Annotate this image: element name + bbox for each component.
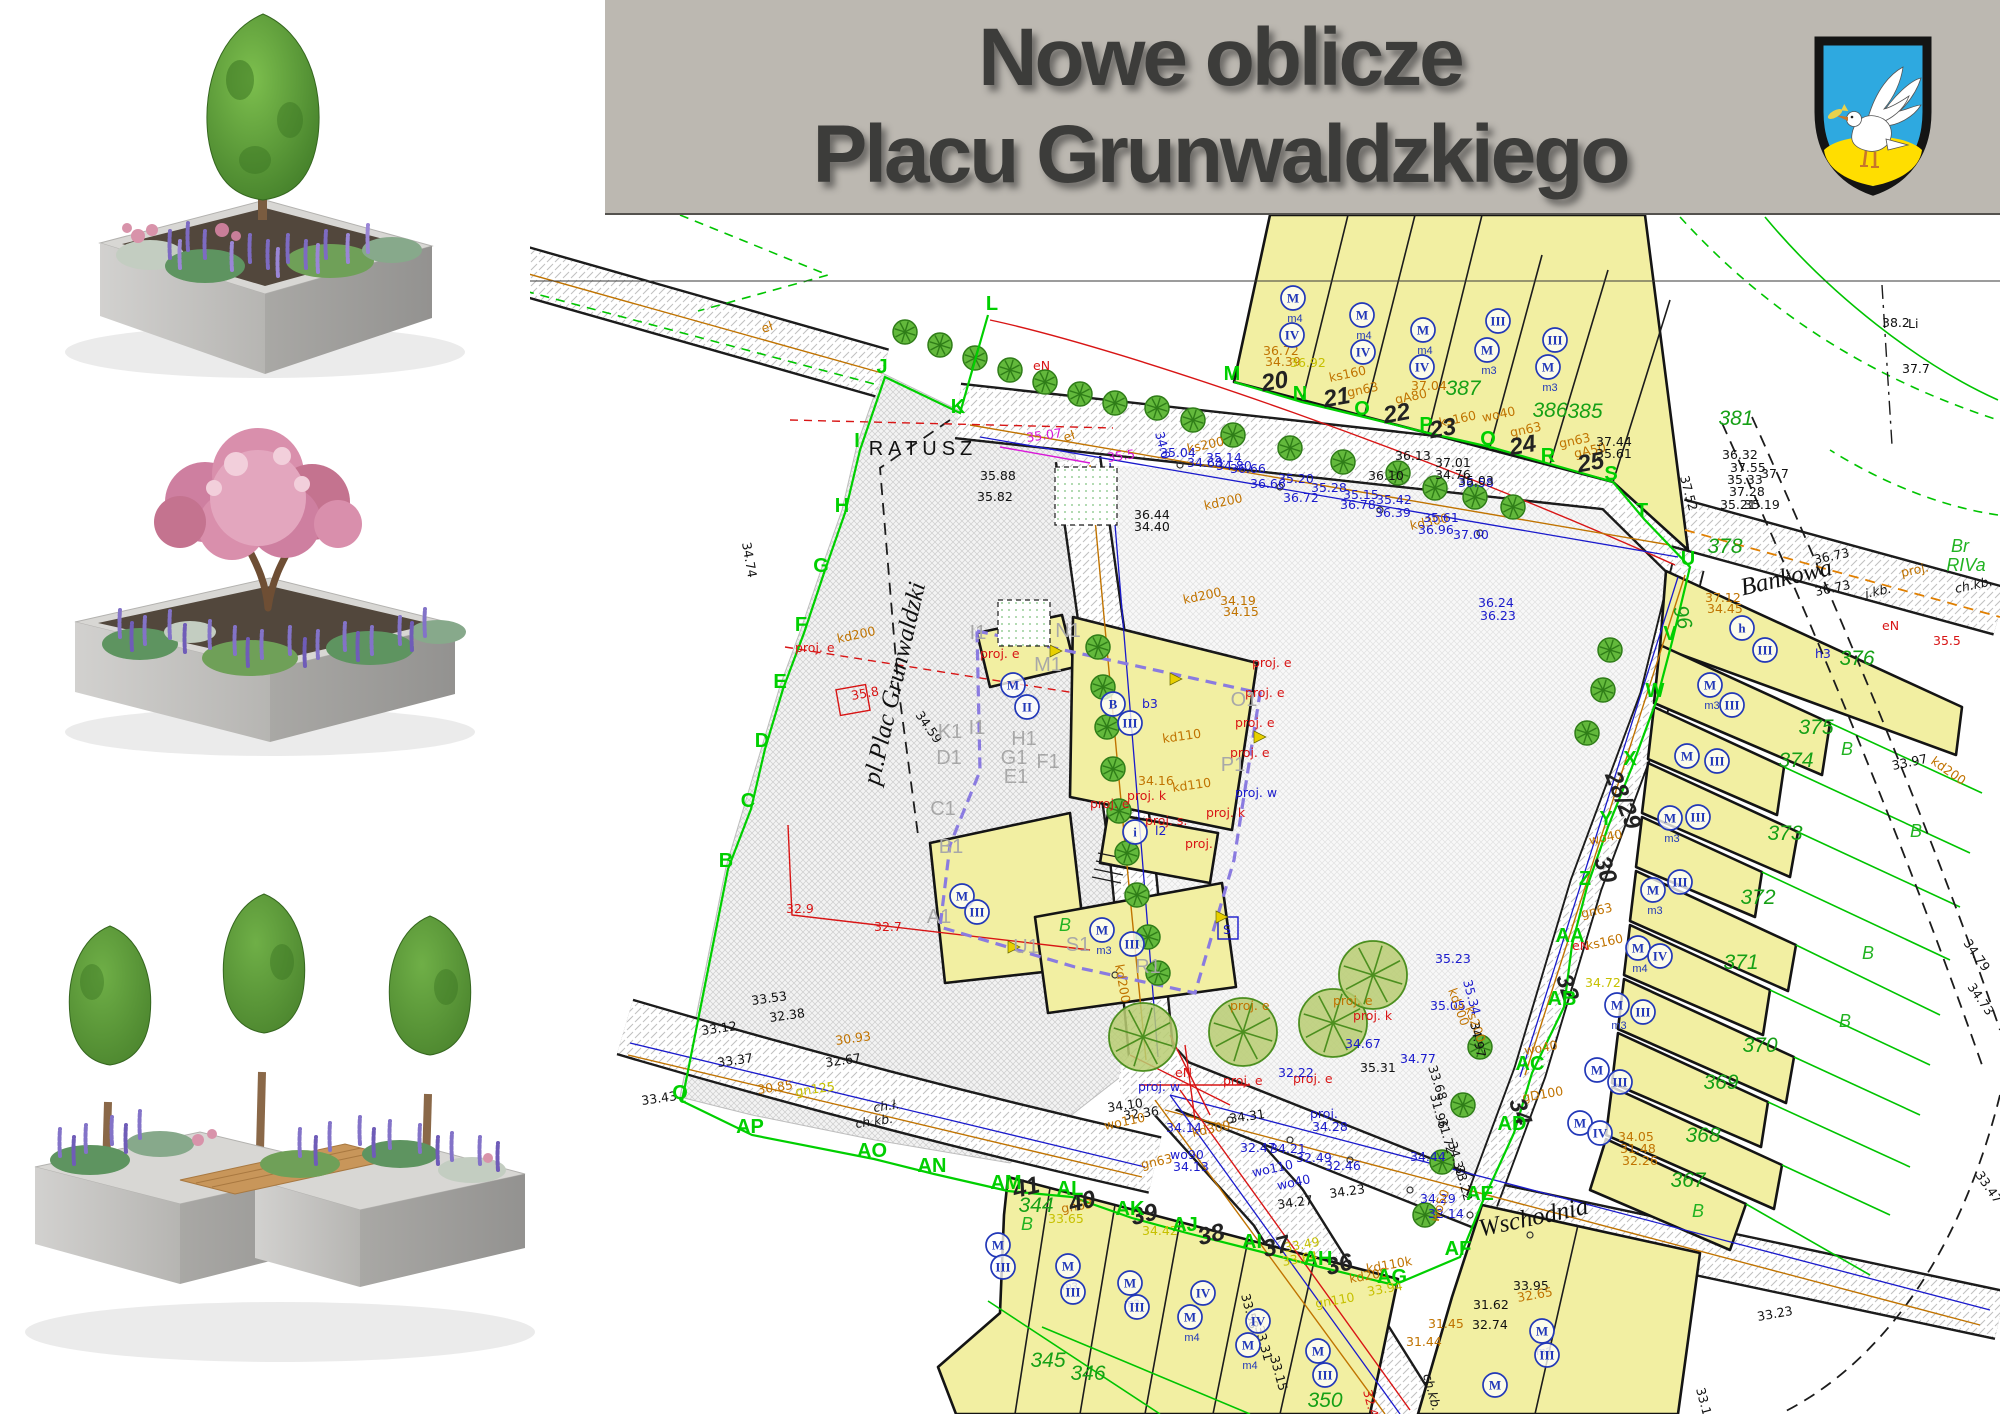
svg-text:IV: IV — [1285, 328, 1300, 343]
place-name: Br — [1951, 536, 1970, 556]
tree-symbol — [1095, 715, 1119, 739]
svg-text:III: III — [995, 1260, 1010, 1275]
map-label: 32.26 — [1622, 1153, 1658, 1168]
poster: Nowe oblicze Placu Grunwaldzkiego — [0, 0, 2000, 1414]
svg-text:m3: m3 — [1704, 700, 1719, 712]
boundary-point-letter: X — [1623, 748, 1637, 770]
parcel-number: 346 — [1070, 1362, 1105, 1385]
building-class-mark: III — [1061, 1280, 1085, 1304]
parcel-number: 368 — [1685, 1124, 1720, 1147]
map-label: 36.39 — [1375, 505, 1411, 520]
svg-text:III: III — [1709, 754, 1724, 769]
map-label: 34.67 — [1345, 1036, 1381, 1051]
landuse-label: B — [1692, 1201, 1704, 1221]
landuse-label: B — [1910, 821, 1922, 841]
map-label: Li — [1908, 316, 1918, 331]
building-class-mark: III — [1535, 1343, 1559, 1367]
boundary-point-letter: D — [755, 730, 769, 752]
shadow — [25, 1302, 535, 1362]
svg-text:M: M — [1574, 1116, 1586, 1131]
title-banner: Nowe oblicze Placu Grunwaldzkiego — [605, 0, 2000, 215]
boundary-point-letter: E — [773, 671, 786, 693]
map-label: proj. e — [1333, 993, 1373, 1008]
map-label: proj. e — [980, 646, 1020, 661]
map-label: 36.13 — [1395, 448, 1431, 463]
svg-text:m3: m3 — [1664, 833, 1679, 845]
area-letter: A1 — [927, 906, 951, 928]
map-label: 35.88 — [980, 468, 1016, 483]
boundary-point-letter: U — [1681, 548, 1695, 570]
area-letter: D1 — [936, 747, 962, 769]
tree-symbol — [1591, 678, 1615, 702]
boundary-point-letter: G — [813, 555, 829, 577]
building-class-mark: IV — [1191, 1281, 1215, 1305]
landuse-label: B — [1841, 739, 1853, 759]
area-letter: R1 — [1135, 956, 1161, 978]
boundary-point-letter: L — [986, 293, 998, 315]
map-label: proj. k — [1127, 788, 1167, 803]
map-label: 34.73 — [1965, 980, 1998, 1018]
parcel-number: 385 — [1567, 400, 1602, 423]
map-label: proj. k — [1206, 805, 1246, 820]
building-class-mark: h — [1730, 616, 1754, 640]
map-label: 34.15 — [1223, 604, 1259, 619]
map-label: 35.19 — [1744, 497, 1780, 512]
map-label: proj. — [1185, 836, 1213, 851]
parcel-number: 386 — [1532, 399, 1567, 422]
building-class-mark: III — [1668, 870, 1692, 894]
title-line-2: Placu Grunwaldzkiego — [605, 107, 1835, 204]
boundary-point-letter: Y — [1599, 808, 1613, 830]
area-letter: U1 — [1013, 936, 1039, 958]
map-label: 32.46 — [1325, 1158, 1361, 1173]
area-letter: F1 — [1036, 751, 1059, 773]
map-label: 31.62 — [1473, 1297, 1509, 1312]
building-class-mark: M — [1001, 673, 1025, 697]
parcel-number: 371 — [1723, 951, 1758, 974]
map-label: 34.16 — [1138, 773, 1174, 788]
boundary-point-letter: T — [1636, 500, 1648, 522]
svg-text:III: III — [969, 905, 984, 920]
building-class-mark: M — [986, 1233, 1010, 1257]
map-label: proj. e — [1230, 998, 1270, 1013]
svg-text:m4: m4 — [1632, 963, 1647, 975]
parcel-number: 381 — [1718, 407, 1753, 430]
map-label: 36.96 — [1418, 522, 1454, 537]
map-label: 32.9 — [786, 901, 814, 916]
lot-number: 25 — [1574, 447, 1607, 479]
boundary-point-letter: AD — [1498, 1113, 1527, 1135]
area-letter: I1 — [969, 717, 986, 739]
parcel-number: 375 — [1798, 716, 1833, 739]
svg-text:m3: m3 — [1611, 1020, 1626, 1032]
svg-text:h: h — [1738, 621, 1746, 636]
boundary-point-letter: AO — [857, 1140, 887, 1162]
svg-text:M: M — [1591, 1063, 1603, 1078]
boundary-point-letter: AN — [918, 1155, 947, 1177]
map-label: 35.20 — [1278, 471, 1314, 486]
svg-text:M: M — [1007, 678, 1019, 693]
boundary-point-letter: AB — [1548, 988, 1577, 1010]
boundary-point-letter: Q — [1480, 428, 1496, 450]
tree-symbol — [1575, 721, 1599, 745]
map-label: eN — [1033, 358, 1050, 373]
svg-text:III: III — [1635, 1005, 1650, 1020]
map-label: 34.40 — [1134, 519, 1170, 534]
map-label: 34.45 — [1707, 601, 1743, 616]
building-class-mark: III — [1720, 693, 1744, 717]
boundary-point-letter: C — [741, 790, 755, 812]
map-label: proj. k — [1353, 1008, 1393, 1023]
map-label: 34.23 — [1328, 1181, 1366, 1201]
landuse-label: B — [1059, 915, 1071, 935]
map-label: 37.7 — [1761, 466, 1789, 481]
boundary-point-letter: H — [835, 495, 849, 517]
svg-text:IV: IV — [1415, 360, 1430, 375]
parcel-number: 350 — [1307, 1389, 1342, 1412]
svg-text:III: III — [1129, 1300, 1144, 1315]
map-label: h3 — [1815, 646, 1831, 661]
map-label: 31.44 — [1406, 1334, 1442, 1349]
boundary-point-letter: O — [1354, 398, 1370, 420]
photo-planter-columnar-tree — [0, 0, 600, 390]
boundary-point-letter: N — [1293, 383, 1307, 405]
map-label: 34.79 — [1961, 936, 1994, 974]
building-class-mark: Mm3 — [1605, 993, 1629, 1032]
svg-text:M: M — [1481, 343, 1493, 358]
map-label: proj. e — [1252, 655, 1292, 670]
boundary-point-letter: AM — [990, 1172, 1021, 1194]
parcel-number: 378 — [1707, 535, 1742, 558]
boundary-point-letter: B — [719, 850, 733, 872]
lot-number: 24 — [1506, 430, 1538, 461]
boundary-point-letter: K — [951, 396, 966, 418]
map-label: 36.10 — [1368, 468, 1404, 483]
map-label: 33.23 — [1756, 1303, 1794, 1324]
map-label: 33.47 — [1973, 1168, 2000, 1206]
boundary-point-letter: AE — [1466, 1183, 1494, 1205]
boundary-point-letter: S — [1604, 463, 1617, 485]
svg-text:M: M — [1542, 360, 1554, 375]
svg-text:M: M — [1096, 923, 1108, 938]
building-class-mark: IV — [1351, 340, 1375, 364]
building-class-mark: B — [1101, 692, 1125, 716]
photo-planter-flowering-tree — [0, 392, 600, 770]
area-letter: B1 — [939, 836, 963, 858]
tree-symbol — [1109, 1003, 1177, 1071]
area-letter: N1 — [1055, 620, 1081, 642]
landuse-label: B — [1839, 1011, 1851, 1031]
building-class-mark: III — [1313, 1363, 1337, 1387]
landuse-label: B — [1862, 943, 1874, 963]
tree-symbol — [1331, 450, 1355, 474]
map-label: 35.31 — [1360, 1060, 1396, 1075]
svg-text:B: B — [1109, 697, 1118, 712]
svg-text:III: III — [1317, 1368, 1332, 1383]
svg-text:IV: IV — [1196, 1286, 1211, 1301]
svg-text:M: M — [1184, 1310, 1196, 1325]
map-label: 35.82 — [977, 489, 1013, 504]
map-label: 31.45 — [1428, 1316, 1464, 1331]
boundary-point-letter: J — [876, 356, 887, 378]
svg-text:III: III — [1124, 937, 1139, 952]
parcel-number: 370 — [1742, 1034, 1777, 1057]
svg-text:III: III — [1612, 1075, 1627, 1090]
boundary-point-letter: AC — [1516, 1053, 1545, 1075]
building-class-mark: M — [1675, 744, 1699, 768]
svg-text:M: M — [1632, 941, 1644, 956]
map-label: ks160 — [1585, 930, 1625, 953]
map-label: 36.66 — [1230, 461, 1266, 476]
map-label: proj. w — [1138, 1079, 1180, 1094]
svg-text:II: II — [1022, 700, 1032, 715]
coat-of-arms — [1808, 34, 1938, 198]
map-label: 38.2 — [1882, 315, 1910, 330]
area-letter: I1 — [970, 622, 987, 644]
svg-text:IV: IV — [1251, 1314, 1266, 1329]
building-class-mark: M — [1585, 1058, 1609, 1082]
svg-text:m4: m4 — [1184, 1332, 1199, 1344]
map-label: 36.72 — [1283, 490, 1319, 505]
svg-text:M: M — [1062, 1259, 1074, 1274]
lot-number: 20 — [1258, 366, 1291, 398]
tree-symbol — [1145, 396, 1169, 420]
lot-number: 21 — [1320, 382, 1352, 413]
boundary-point-letter: AJ — [1172, 1214, 1198, 1236]
svg-text:III: III — [1065, 1285, 1080, 1300]
boundary-point-letter: AL — [1057, 1178, 1084, 1200]
boundary-point-letter: AI — [1242, 1231, 1262, 1253]
map-label: 34.77 — [1400, 1051, 1436, 1066]
photo-planter-l-shaped-bench — [0, 772, 600, 1414]
building-class-mark: III — [1631, 1000, 1655, 1024]
boundary-point-letter: AH — [1304, 1248, 1333, 1270]
svg-text:M: M — [1681, 749, 1693, 764]
map-label: proj. s. — [1145, 813, 1187, 828]
building-class-mark: IV — [1410, 355, 1434, 379]
place-name: RIVa — [1946, 555, 1985, 575]
building-class-mark: III — [1753, 638, 1777, 662]
svg-text:M: M — [1664, 811, 1676, 826]
svg-text:IV: IV — [1593, 1126, 1608, 1141]
svg-text:III: III — [1672, 875, 1687, 890]
boundary-point-letter: AG — [1377, 1266, 1407, 1288]
map-label: 35.5 — [1106, 446, 1136, 465]
place-name: RATUSZ — [869, 438, 978, 460]
building-class-mark: M — [1306, 1339, 1330, 1363]
boundary-point-letter: P — [1419, 414, 1432, 436]
tree-symbol — [1501, 495, 1525, 519]
map-label: 37.00 — [1453, 527, 1489, 542]
map-label: 33.11 — [1693, 1386, 1717, 1414]
building-class-mark: III — [1543, 328, 1567, 352]
building-class-mark: i — [1123, 820, 1147, 844]
building-class-mark: IV — [1588, 1121, 1612, 1145]
map-label: proj. e — [795, 640, 835, 655]
svg-text:M: M — [992, 1238, 1004, 1253]
tree-symbol — [1451, 1093, 1475, 1117]
building-class-mark: III — [1705, 749, 1729, 773]
map-label: proj. e — [1090, 796, 1130, 811]
building-class-mark: M — [1483, 1373, 1507, 1397]
map-label: 34.13 — [1173, 1159, 1209, 1174]
svg-text:M: M — [1312, 1344, 1324, 1359]
map-label: 34.74 — [739, 541, 760, 579]
boundary-point-letter: AF — [1445, 1238, 1472, 1260]
svg-text:III: III — [1690, 810, 1705, 825]
boundary-point-letter: R — [1541, 445, 1556, 467]
svg-text:M: M — [1356, 308, 1368, 323]
tree-symbol — [1033, 370, 1057, 394]
svg-text:m3: m3 — [1096, 945, 1111, 957]
map-label: 35.5 — [1933, 633, 1961, 648]
building-class-mark: III — [1125, 1295, 1149, 1319]
map-label: proj. e — [1235, 715, 1275, 730]
map-label: 32.22 — [1278, 1065, 1314, 1080]
boundary-point-letter: F — [795, 614, 807, 636]
building-class-mark: III — [1608, 1070, 1632, 1094]
boundary-point-letter: AA — [1556, 925, 1585, 947]
building-class-mark: III — [1686, 805, 1710, 829]
map-label: S — [1223, 922, 1231, 937]
tree-symbol — [1125, 883, 1149, 907]
svg-text:m4: m4 — [1242, 1360, 1257, 1372]
survey-map: 35.8835.8234.7434.59ełełeNeNeNeN35.0735.… — [530, 215, 2000, 1414]
tree-symbol — [893, 320, 917, 344]
poster-title: Nowe oblicze Placu Grunwaldzkiego — [605, 10, 1835, 204]
map-label: 34.44 — [1410, 1149, 1446, 1164]
boundary-point-letter: Z — [1579, 868, 1591, 890]
svg-text:M: M — [1287, 291, 1299, 306]
building-class-mark: II — [1015, 695, 1039, 719]
building-class-mark: III — [1120, 932, 1144, 956]
svg-text:III: III — [1547, 333, 1562, 348]
tree-symbol — [1068, 382, 1092, 406]
boundary-point-letter: W — [1646, 680, 1665, 702]
svg-text:III: III — [1490, 314, 1505, 329]
map-label: eN — [1175, 1065, 1192, 1080]
map-label: 36.78 — [1340, 497, 1376, 512]
tree-symbol — [998, 358, 1022, 382]
area-letter: P1 — [1221, 754, 1245, 776]
lot-number: 22 — [1380, 398, 1413, 430]
svg-text:M: M — [1242, 1338, 1254, 1353]
tree-symbol — [1221, 423, 1245, 447]
svg-text:m3: m3 — [1481, 365, 1496, 377]
tree-symbol — [1181, 408, 1205, 432]
svg-text:M: M — [1704, 678, 1716, 693]
building-class-mark: IV — [1648, 944, 1672, 968]
landuse-label: B — [1021, 1214, 1033, 1234]
area-letter: O1 — [1231, 689, 1258, 711]
map-label: 35.03 — [1458, 473, 1494, 488]
svg-text:M: M — [1489, 1378, 1501, 1393]
svg-text:M: M — [1417, 323, 1429, 338]
map-label: 36.92 — [1290, 355, 1326, 370]
tree-symbol — [1086, 635, 1110, 659]
tree-symbol — [1598, 638, 1622, 662]
svg-text:m3: m3 — [1647, 905, 1662, 917]
svg-text:m3: m3 — [1542, 382, 1557, 394]
svg-text:M: M — [956, 889, 968, 904]
tree-symbol — [1278, 436, 1302, 460]
svg-text:M: M — [1536, 1324, 1548, 1339]
map-label: 37.7 — [1902, 361, 1930, 376]
parcel-number: 367 — [1670, 1169, 1706, 1192]
svg-text:III: III — [1122, 716, 1137, 731]
building-class-mark: IV — [1246, 1309, 1270, 1333]
svg-text:M: M — [1611, 998, 1623, 1013]
area-letter: M1 — [1034, 654, 1062, 676]
columnar-tree — [207, 14, 319, 220]
parcel-number: 387 — [1445, 377, 1481, 400]
area-letter: C1 — [930, 798, 956, 820]
svg-text:III: III — [1757, 643, 1772, 658]
svg-text:III: III — [1724, 698, 1739, 713]
boundary-point-letter: AP — [736, 1116, 764, 1138]
area-letter: S1 — [1066, 934, 1090, 956]
boundary-point-letter: V — [1663, 623, 1677, 645]
boundary-point-letter: M — [1224, 363, 1241, 385]
map-label: 32.74 — [1472, 1317, 1508, 1332]
trees — [69, 894, 470, 1172]
svg-text:III: III — [1539, 1348, 1554, 1363]
building-class-mark: III — [965, 900, 989, 924]
map-label: 34.72 — [1585, 975, 1621, 990]
map-label: 32.7 — [874, 919, 902, 934]
parcel-number: 376 — [1839, 647, 1874, 670]
area-letter: K1 — [938, 721, 962, 743]
svg-text:i: i — [1133, 825, 1137, 840]
tree-symbol — [1101, 757, 1125, 781]
map-label: 37.04 — [1411, 378, 1447, 393]
map-label: proj. w — [1235, 785, 1277, 800]
parcel-number: 369 — [1703, 1071, 1738, 1094]
map-label: proj. e — [1223, 1073, 1263, 1088]
map-label: 34.28 — [1312, 1119, 1348, 1134]
building-class-mark: III — [1486, 309, 1510, 333]
parcel-number: 374 — [1778, 749, 1813, 772]
map-label: 36.23 — [1480, 608, 1516, 623]
parcel-number: 372 — [1740, 886, 1775, 909]
area-letter: E1 — [1004, 766, 1028, 788]
map-label: b3 — [1142, 696, 1158, 711]
building-class-mark: IV — [1280, 323, 1304, 347]
parcel-number: 373 — [1767, 822, 1802, 845]
boundary-point-letter: Q — [672, 1082, 688, 1104]
boundary-point-letter: I — [854, 430, 860, 452]
svg-text:M: M — [1124, 1276, 1136, 1291]
tree-symbol — [1103, 391, 1127, 415]
boundary-point-letter: AK — [1116, 1198, 1145, 1220]
title-line-1: Nowe oblicze — [605, 10, 1835, 107]
map-label: 35.23 — [1435, 951, 1471, 966]
tree-symbol — [928, 333, 952, 357]
parcel-number: 345 — [1030, 1349, 1065, 1372]
svg-text:IV: IV — [1653, 949, 1668, 964]
svg-text:IV: IV — [1356, 345, 1371, 360]
building-class-mark: III — [1118, 711, 1142, 735]
map-label: eN — [1882, 618, 1899, 633]
building-class-mark: III — [991, 1255, 1015, 1279]
svg-text:M: M — [1647, 883, 1659, 898]
